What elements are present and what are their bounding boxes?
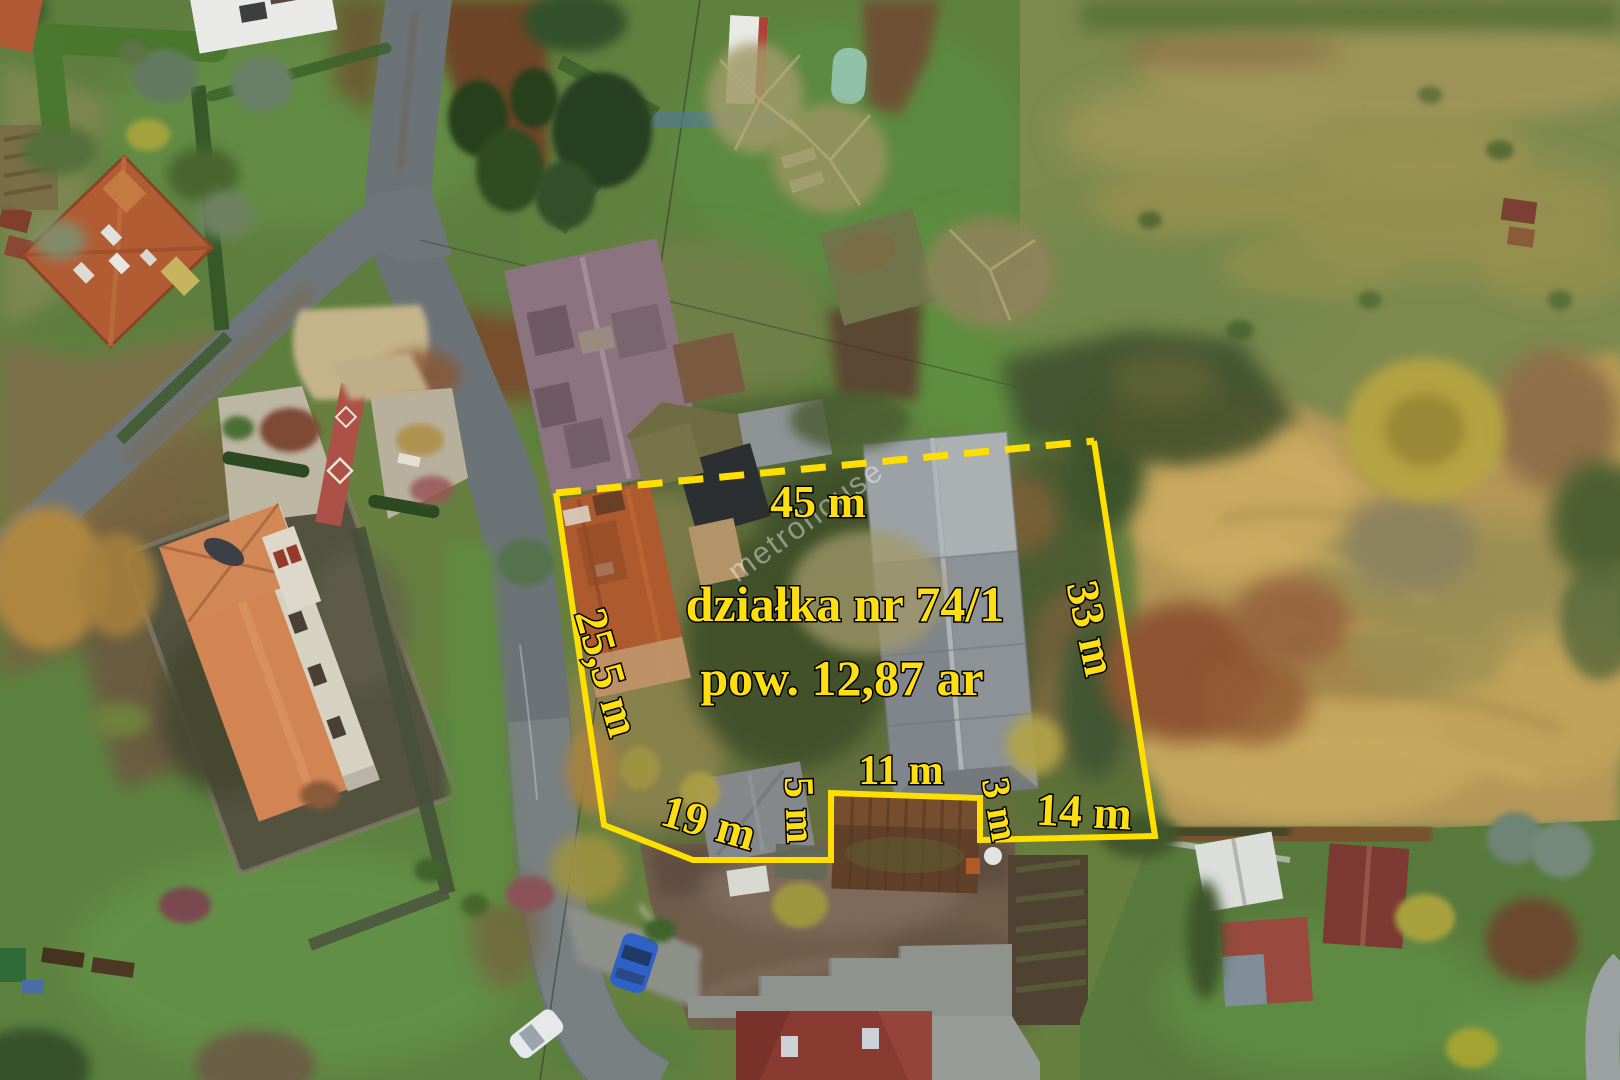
svg-text:działka nr 74/1: działka nr 74/1 bbox=[686, 576, 1005, 632]
svg-text:11 m: 11 m bbox=[858, 748, 943, 794]
svg-text:14 m: 14 m bbox=[1035, 784, 1133, 840]
svg-text:5 m: 5 m bbox=[775, 776, 823, 844]
svg-text:pow. 12,87 ar: pow. 12,87 ar bbox=[700, 650, 983, 706]
svg-text:45 m: 45 m bbox=[770, 476, 866, 527]
